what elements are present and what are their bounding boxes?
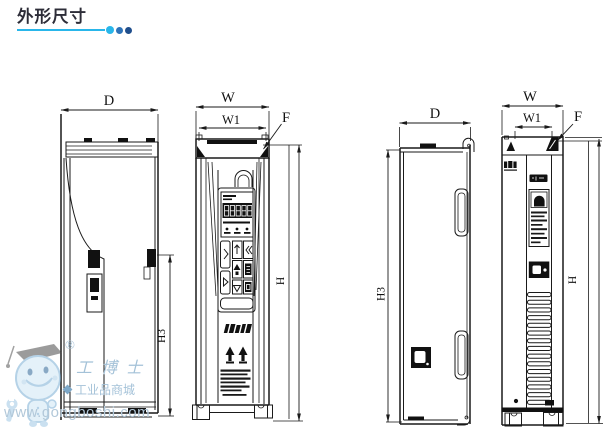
vent-slats bbox=[528, 293, 552, 405]
dimension-drawing: D bbox=[0, 0, 609, 432]
dim-label-w1: W1 bbox=[523, 111, 541, 125]
view-large-front: W W1 F bbox=[502, 89, 604, 426]
dim-label-d: D bbox=[430, 106, 440, 122]
dim-label-w1: W1 bbox=[222, 113, 240, 127]
arch-icon bbox=[534, 196, 545, 207]
side-connector-port bbox=[411, 347, 431, 368]
brand-logotype bbox=[224, 324, 252, 333]
dim-label-h3: H3 bbox=[376, 287, 388, 301]
keypad-bottom-bar bbox=[221, 298, 254, 309]
rear-hook-connector bbox=[144, 249, 156, 279]
warning-text-block bbox=[221, 370, 251, 396]
dim-label-w: W bbox=[523, 89, 537, 105]
keypad-buttons bbox=[221, 241, 254, 294]
column-logo bbox=[530, 175, 548, 183]
shift-key-icon bbox=[224, 278, 229, 286]
dim-hole-f: F bbox=[558, 109, 583, 141]
mount-slot bbox=[507, 142, 516, 152]
dim-width1: W1 bbox=[199, 113, 266, 141]
dim-width1: W1 bbox=[515, 111, 552, 139]
mounting-feet bbox=[505, 413, 563, 427]
bottom-tab bbox=[408, 417, 424, 421]
stop-key-icon bbox=[245, 282, 252, 292]
side-handle-slots bbox=[455, 189, 468, 379]
dim-depth: D bbox=[400, 106, 471, 147]
warning-symbols bbox=[226, 347, 248, 364]
dim-label-h: H bbox=[567, 276, 579, 284]
down-key-icon bbox=[234, 286, 241, 292]
bottom-foot bbox=[128, 408, 146, 413]
seven-segment-display bbox=[223, 203, 253, 218]
mount-slot bbox=[197, 146, 205, 157]
page: 外形尺寸 D bbox=[0, 0, 609, 432]
view-small-front: W W1 F bbox=[193, 90, 304, 421]
top-tab bbox=[84, 138, 92, 142]
dim-depth: D bbox=[61, 93, 158, 142]
func-key-icon bbox=[234, 264, 241, 270]
prg-key-icon bbox=[224, 249, 228, 259]
esc-key-icon bbox=[246, 246, 252, 254]
dim-label-f: F bbox=[574, 109, 582, 125]
front-connector-port bbox=[529, 262, 550, 279]
top-tab bbox=[420, 144, 436, 149]
hanging-hook bbox=[463, 138, 474, 152]
warning-label bbox=[529, 190, 549, 247]
keypad bbox=[218, 188, 255, 312]
top-tab bbox=[118, 138, 128, 142]
dim-label-f: F bbox=[282, 110, 290, 126]
dim-label-h: H bbox=[275, 277, 287, 285]
bottom-foot bbox=[79, 408, 97, 413]
top-tab bbox=[146, 138, 155, 142]
dim-hole-f: F bbox=[264, 110, 291, 149]
view-small-side: D bbox=[61, 93, 174, 420]
bottom-hook bbox=[457, 412, 470, 425]
status-leds bbox=[224, 228, 251, 234]
up-key-icon bbox=[235, 245, 240, 254]
screw-dot bbox=[514, 399, 518, 403]
bottom-bar bbox=[502, 408, 564, 413]
bottom-tab bbox=[545, 400, 554, 406]
dim-label-w: W bbox=[221, 90, 235, 106]
dim-label-d: D bbox=[104, 93, 114, 109]
view-large-side: D bbox=[376, 106, 475, 425]
side-keypad-detail bbox=[87, 250, 102, 312]
dim-height3: H3 bbox=[376, 150, 403, 422]
dim-height: H bbox=[558, 138, 603, 424]
brand-logotype bbox=[504, 161, 517, 171]
mounting-feet bbox=[193, 405, 273, 420]
dim-label-h3: H3 bbox=[156, 329, 168, 343]
